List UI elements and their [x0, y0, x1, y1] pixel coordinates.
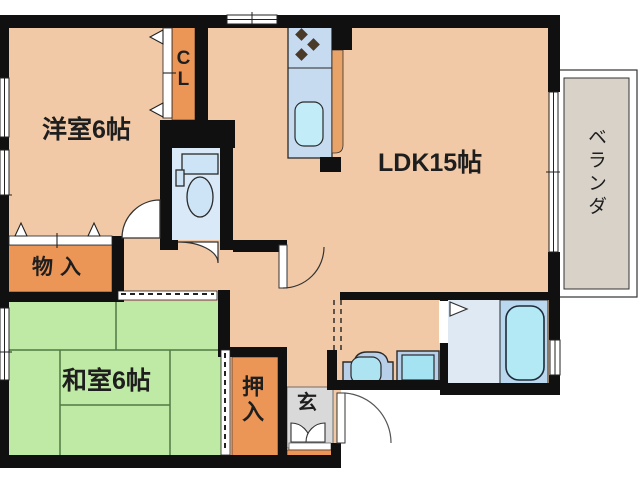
wall-segment	[320, 157, 341, 172]
floor-plan: 洋室6帖 LDK15帖 和室6帖 物入 押入 玄 CL ベランダ	[0, 0, 640, 480]
wall-segment	[327, 350, 337, 382]
room-label-cl: CL	[173, 48, 193, 90]
wall-segment	[331, 443, 341, 468]
wall-segment	[172, 240, 178, 250]
wall-segment	[340, 292, 560, 300]
wall-segment	[0, 455, 341, 468]
room-label-genkan: 玄	[297, 393, 317, 414]
wall-segment	[220, 132, 233, 250]
window-top-ldk-icon	[227, 12, 277, 24]
wall-segment	[3, 15, 560, 28]
exterior-cutout	[341, 388, 560, 480]
wall-segment	[327, 380, 448, 390]
window-west-room-upper-icon	[0, 78, 9, 137]
toilet-room	[172, 148, 220, 240]
wall-segment	[549, 300, 560, 340]
window-bathroom-icon	[550, 340, 560, 375]
wall-segment	[278, 347, 287, 468]
fusuma-oshiire-icon	[221, 350, 230, 455]
wall-segment	[0, 292, 124, 302]
wall-segment	[440, 383, 560, 395]
floor-plan-drawing	[0, 0, 640, 480]
wall-segment	[548, 15, 560, 92]
room-label-japanese: 和室6帖	[62, 368, 151, 394]
room-label-storage: 物入	[32, 257, 88, 279]
room-label-western: 洋室6帖	[42, 117, 131, 143]
room-label-ldk: LDK15帖	[378, 150, 482, 176]
room-label-oshiire: 押入	[240, 375, 263, 425]
wall-segment	[195, 15, 208, 132]
kitchen-counter-edge	[332, 50, 343, 153]
bathtub-icon	[506, 306, 544, 380]
wall-segment	[160, 132, 172, 250]
wall-segment	[332, 15, 352, 50]
room-label-veranda: ベランダ	[585, 127, 605, 219]
wall-segment	[218, 290, 230, 350]
kitchen-sink-icon	[295, 102, 323, 146]
fusuma-japanese-room-north-icon	[118, 291, 217, 300]
